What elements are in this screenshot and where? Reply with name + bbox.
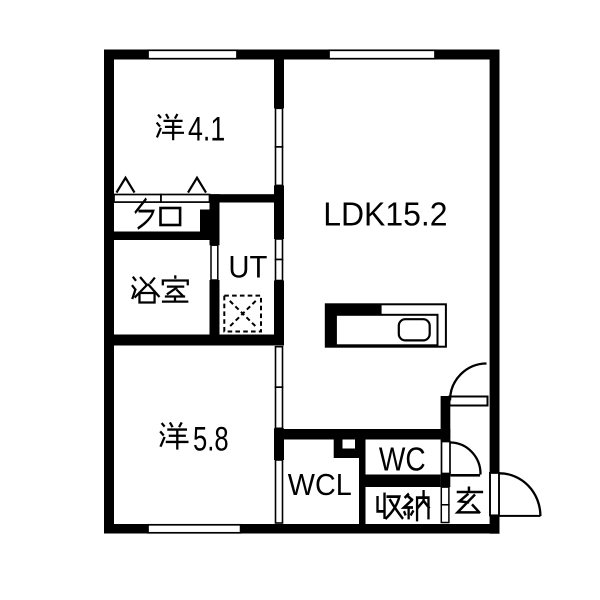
- svg-text:4.1: 4.1: [188, 111, 225, 149]
- svg-text:5.8: 5.8: [193, 421, 229, 459]
- svg-text:LDK15.2: LDK15.2: [323, 196, 447, 233]
- svg-text:UT: UT: [228, 248, 267, 284]
- svg-text:WC: WC: [379, 442, 426, 479]
- svg-text:WCL: WCL: [288, 467, 352, 502]
